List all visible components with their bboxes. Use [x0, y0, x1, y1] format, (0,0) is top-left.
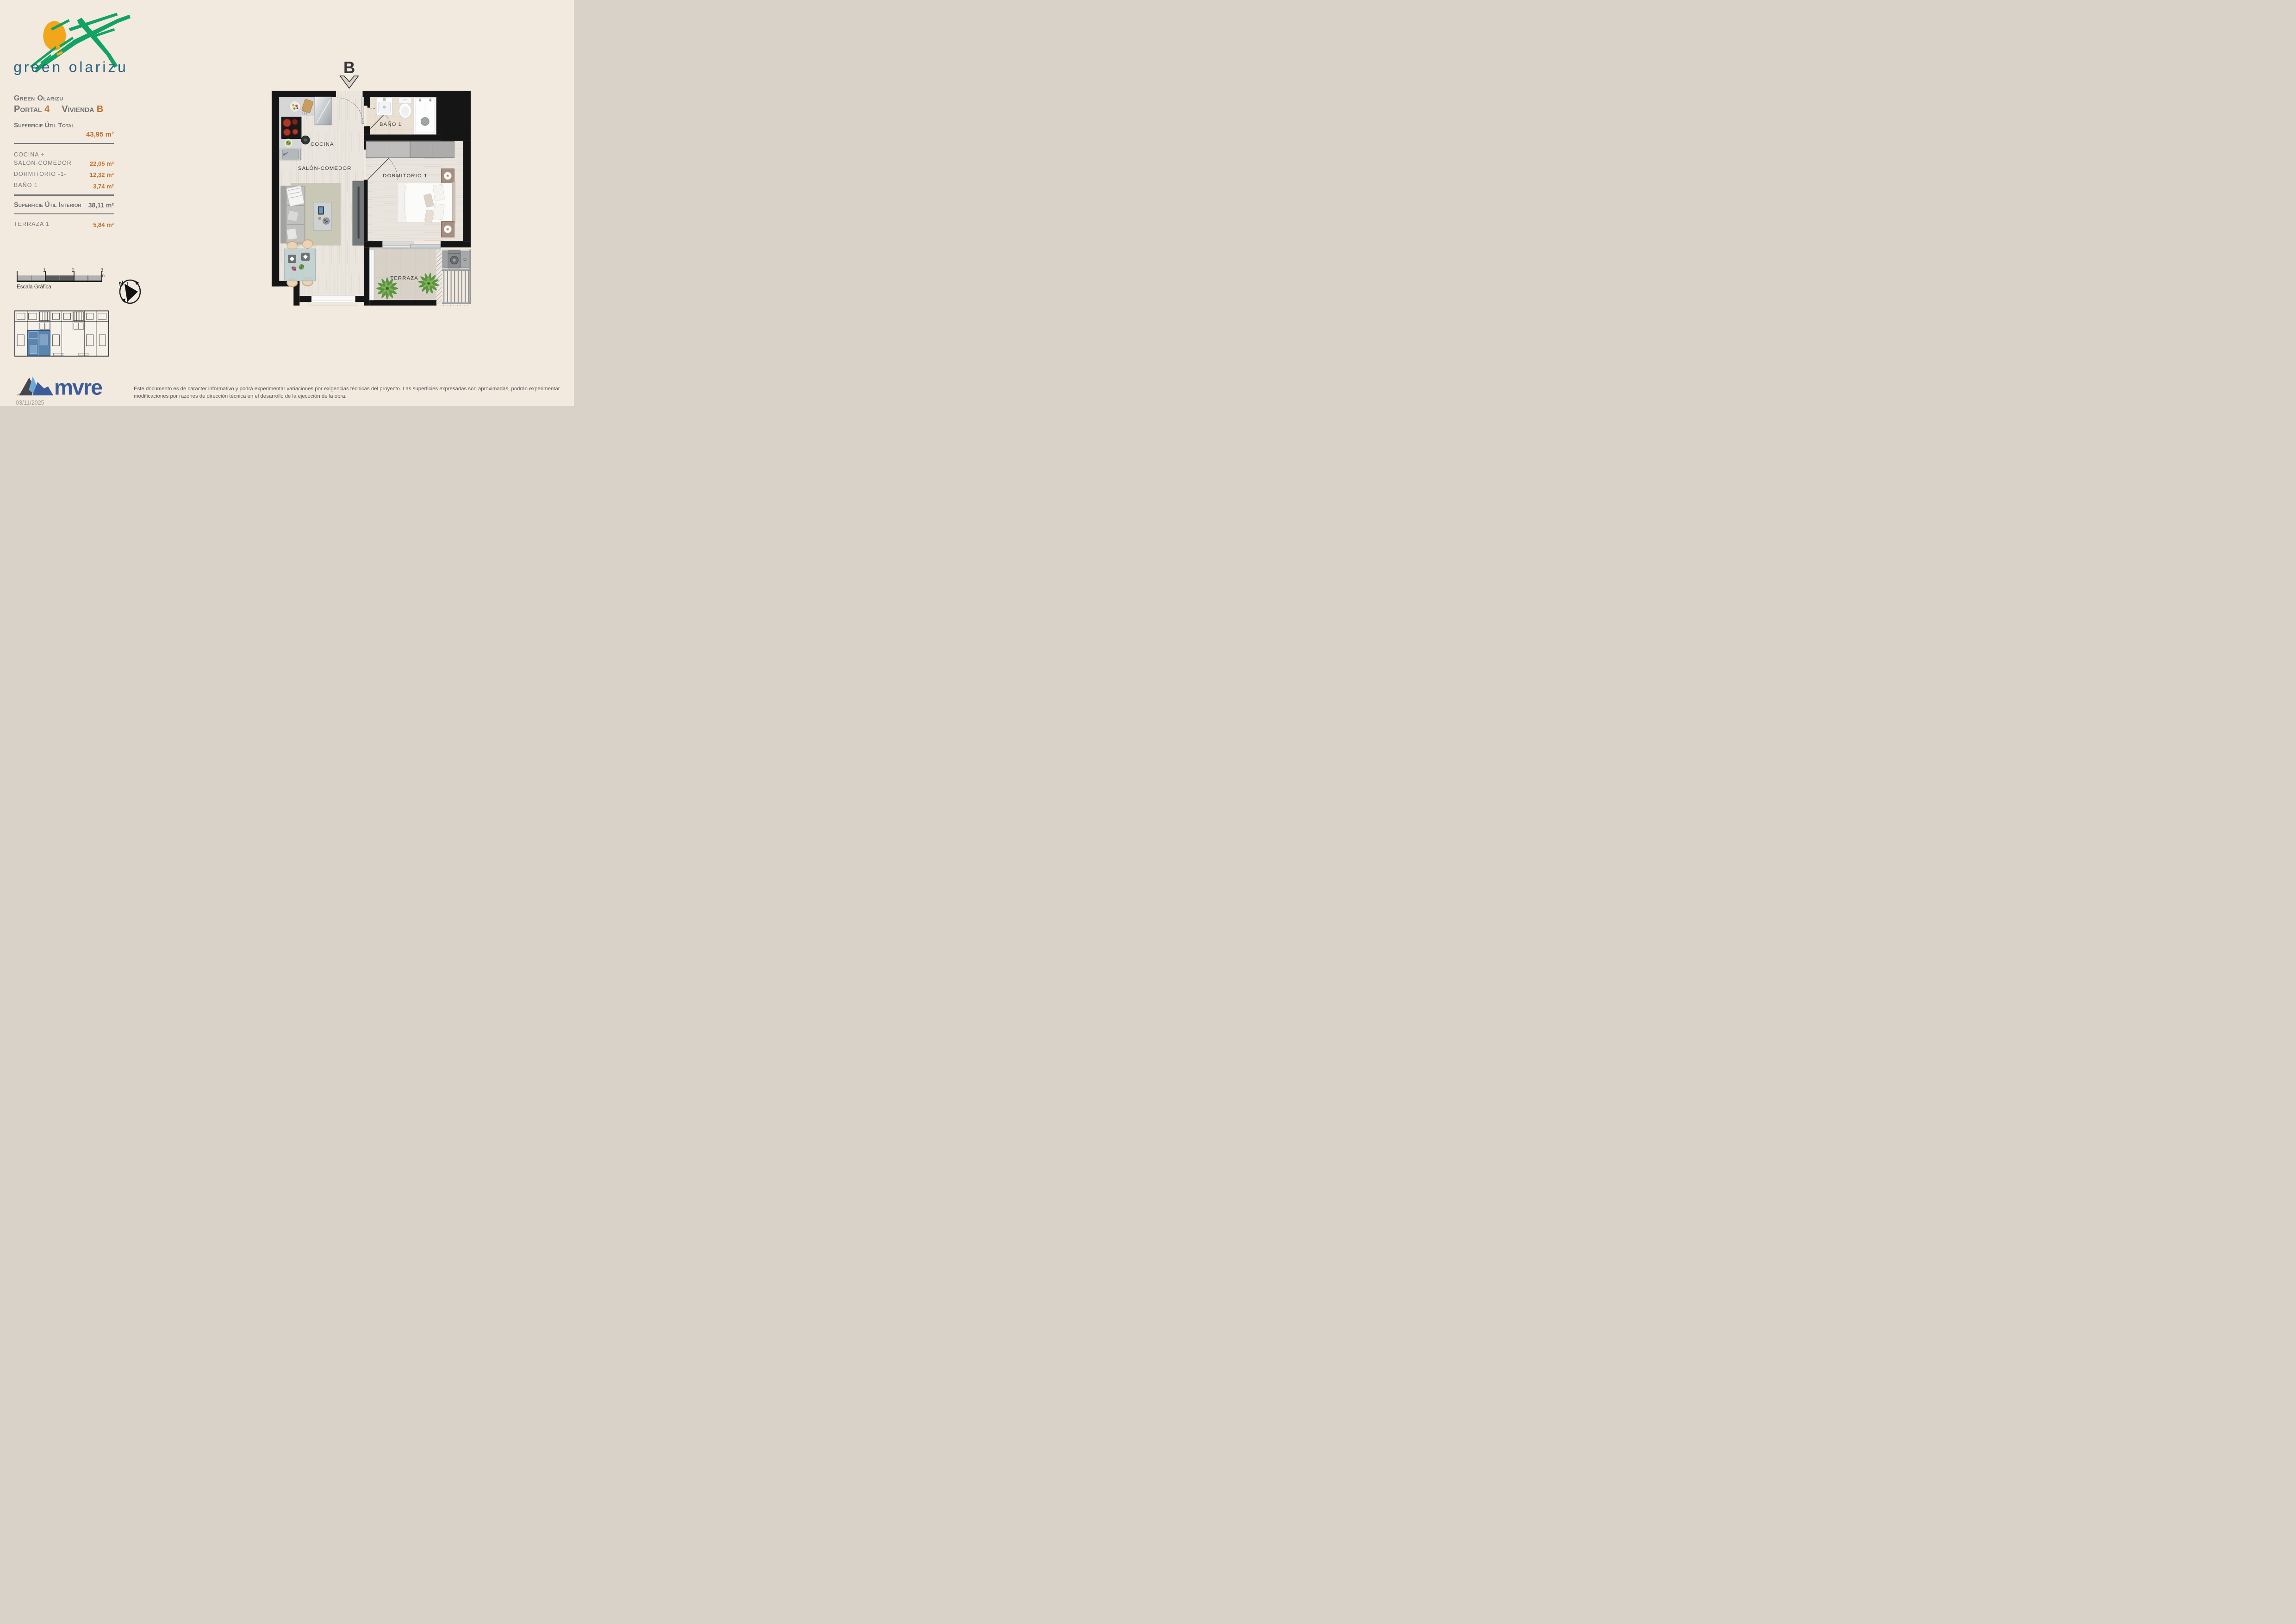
terrace-label: TERRAZA 1 [14, 220, 50, 228]
compass-north-label: N [118, 279, 125, 288]
mvre-wordmark: mvre [54, 376, 102, 399]
room-label-bath: BAÑO 1 [380, 121, 402, 127]
plan-sheet-page: green olarizu Green Olarizu Portal 4Vivi… [0, 0, 574, 406]
divider [14, 194, 114, 196]
document-date: 03/11/2025 [16, 400, 44, 406]
room-label-kitchen: COCINA [311, 142, 334, 147]
living-window [309, 296, 358, 305]
tv-screen [358, 187, 360, 238]
portal-number: 4 [44, 104, 50, 114]
room-area-value: 12,32 m² [90, 171, 114, 178]
laundry-nook [442, 250, 469, 268]
coffee-cup-icon [318, 217, 321, 219]
interior-area-value: 38,11 m² [88, 201, 114, 209]
vivienda-letter: B [97, 104, 103, 114]
room-label-terrace: TERRAZA [390, 276, 418, 281]
fruit-bowl-icon [289, 101, 300, 112]
table-row: BAÑO 1 3,74 m² [14, 181, 114, 189]
north-compass-icon: N [118, 278, 142, 305]
legal-disclaimer: Este documento es de caracter informativ… [134, 386, 572, 400]
divider [14, 143, 114, 144]
sofa [280, 186, 305, 243]
room-label-bedroom: DORMITORIO 1 [383, 173, 427, 179]
shower-icon [414, 97, 436, 134]
project-name: Green Olarizu [14, 94, 114, 103]
window-sill [309, 302, 358, 306]
nightstand [441, 169, 454, 183]
dining-chair [302, 240, 312, 249]
bed [398, 182, 455, 223]
terrace-area-value: 5,84 m² [93, 221, 114, 228]
coffee-table [313, 202, 331, 231]
room-area-value: 3,74 m² [93, 183, 114, 190]
headboard [452, 182, 455, 223]
drain-strip [436, 250, 442, 304]
building-key-plan [14, 310, 110, 359]
entrance-door-leaf [362, 97, 364, 124]
storage-cabinet [460, 251, 469, 267]
room-area-value: 22,05 m² [90, 160, 114, 167]
green-olarizu-logo: green olarizu [12, 6, 156, 75]
interior-area-row: Superficie Útil Interior 38,11 m² [14, 201, 114, 209]
mvre-logo: mvre [14, 376, 106, 399]
decor-tray-icon [323, 218, 330, 224]
portal-label: Portal [14, 104, 44, 114]
room-label: DORMITORIO -1- [14, 170, 67, 178]
toilet-icon [398, 98, 411, 118]
unit-info-panel: Green Olarizu Portal 4Vivienda B Superfi… [14, 94, 114, 228]
room-label: SALON-COMEDOR [14, 159, 72, 167]
terrace-area-row: TERRAZA 1 5,84 m² [14, 220, 114, 228]
entrance-threshold [336, 91, 363, 97]
wardrobe [366, 141, 454, 157]
cushion [286, 228, 297, 240]
entrance-arrow-icon [340, 76, 359, 88]
room-label: BAÑO 1 [14, 181, 38, 189]
room-label: COCINA + [14, 150, 72, 159]
key-plan-highlighted-unit [27, 330, 50, 356]
room-area-table: COCINA + SALON-COMEDOR 22,05 m² DORMITOR… [14, 150, 114, 190]
floor-plan: B [270, 59, 472, 306]
room-label-living: SALÓN-COMEDOR [298, 165, 352, 171]
total-area-value: 43,95 m² [14, 131, 114, 138]
pillow [433, 204, 444, 220]
scale-bar-title: Escala Gráfica [17, 284, 51, 290]
vivienda-label: Vivienda [62, 104, 97, 114]
divider [14, 213, 114, 214]
logo-wordmark: green olarizu [13, 59, 128, 75]
scale-bar-baseline [17, 281, 102, 282]
dining-table [284, 249, 315, 281]
pillow [433, 184, 445, 201]
sliding-door [382, 242, 441, 249]
nightstand [441, 221, 454, 237]
entrance-unit-label: B [343, 59, 355, 77]
total-area-label: Superficie Útil Total [14, 121, 114, 129]
utility-cabinet [442, 251, 448, 268]
table-row: COCINA + SALON-COMEDOR 22,05 m² [14, 150, 114, 167]
portal-vivienda-line: Portal 4Vivienda B [14, 104, 114, 115]
tv-unit [353, 181, 364, 245]
washbasin-icon [376, 98, 392, 115]
table-row: DORMITORIO -1- 12,32 m² [14, 170, 114, 178]
graphic-scale: 1 2 3 m. Escala Gráfica [17, 268, 109, 292]
interior-area-label: Superficie Útil Interior [14, 201, 81, 209]
